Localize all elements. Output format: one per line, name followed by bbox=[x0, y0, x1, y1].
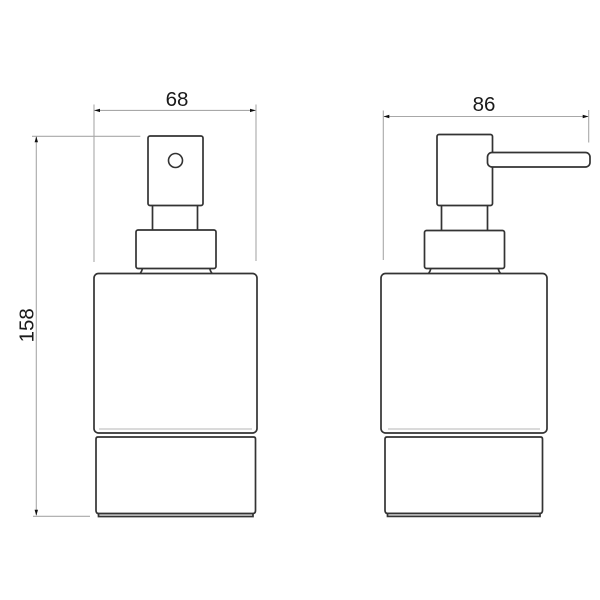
svg-text:86: 86 bbox=[473, 93, 496, 116]
svg-text:158: 158 bbox=[16, 308, 39, 342]
svg-text:68: 68 bbox=[166, 88, 189, 111]
